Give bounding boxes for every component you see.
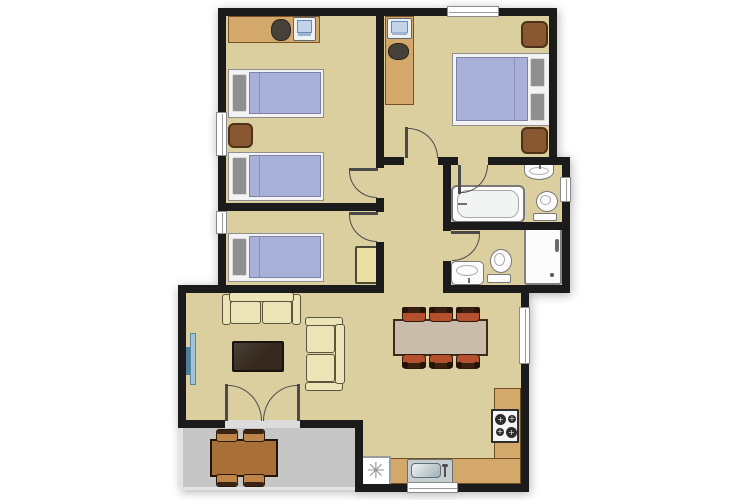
window-glass [525, 309, 526, 364]
door-swing-patio-french-right [263, 385, 297, 421]
window-bedroom-2-west [216, 211, 227, 234]
window-glass [409, 488, 458, 489]
window-glass [566, 179, 567, 202]
window-ensuite-east [560, 177, 571, 202]
door-gap-ensuite [458, 157, 488, 165]
door-gap-bedroom-1 [376, 168, 384, 198]
openings-layer [0, 0, 750, 500]
window-glass [449, 12, 499, 13]
door-gap-patio-french-left [225, 420, 300, 428]
window-glass [222, 114, 223, 156]
door-gap-bathroom [443, 231, 451, 261]
door-gap-master-bedroom [404, 157, 438, 165]
window-dining-east [519, 307, 530, 364]
door-gap-bedroom-2 [376, 212, 384, 242]
window-glass [222, 213, 223, 234]
window-kitchen-south [407, 482, 458, 493]
window-bedroom-1-west [216, 112, 227, 156]
door-leaf-patio-french-right [297, 384, 300, 421]
window-master-north [447, 6, 499, 17]
screenshot-canvas: ++++✳ [0, 0, 750, 500]
apartment-floor-plan: ++++✳ [0, 0, 750, 500]
door-swing-bedroom-2 [349, 215, 377, 242]
door-swing-bathroom [452, 234, 480, 261]
door-swing-bedroom-1 [349, 171, 377, 198]
door-swing-ensuite [461, 165, 488, 193]
door-swing-master-bedroom [408, 128, 438, 158]
door-swing-patio-french-left [228, 385, 262, 421]
